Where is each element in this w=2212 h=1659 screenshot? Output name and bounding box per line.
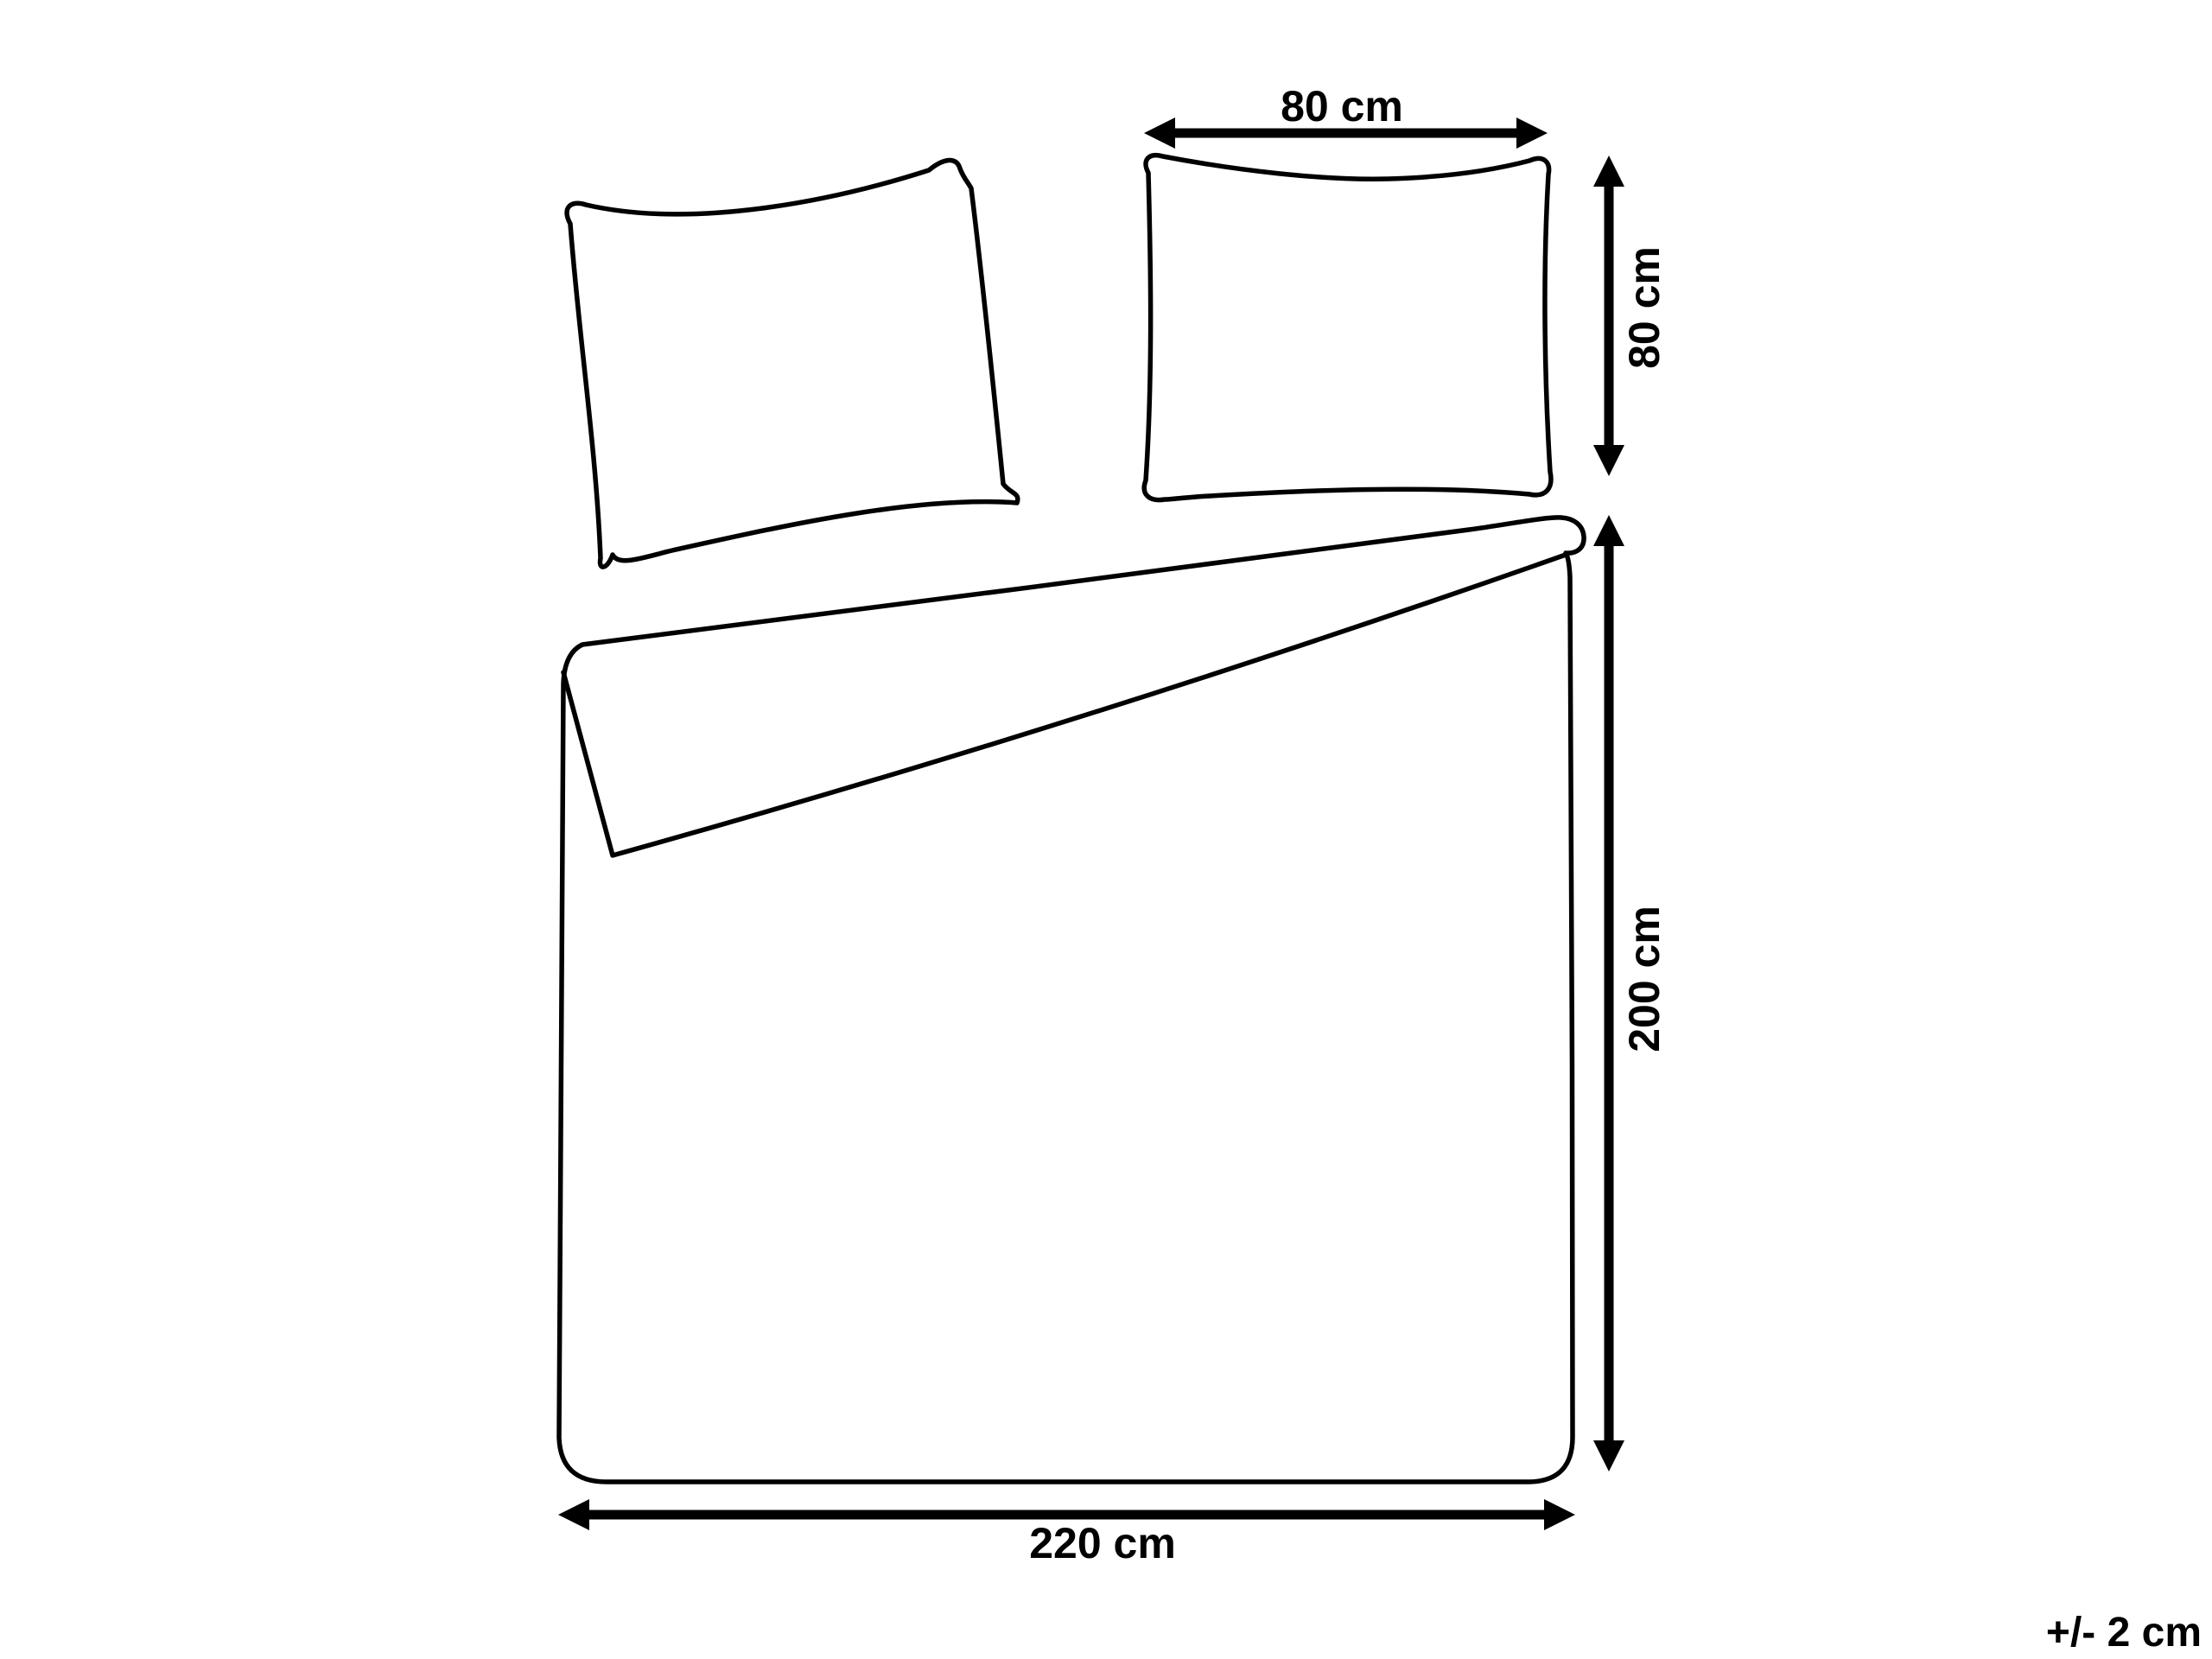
dimension-label-pillow-width: 80 cm [1281,82,1403,130]
arrowhead-down [1593,1440,1624,1471]
arrowhead-left [1144,118,1175,149]
arrowhead-right [1544,1499,1575,1530]
dimension-label-duvet-width: 220 cm [1029,1519,1176,1567]
pillowcase-left-outline [567,160,1018,567]
tolerance-label: +/- 2 cm [2046,1610,2202,1656]
duvet-cover-outline [559,518,1584,1482]
dimension-label-duvet-length: 200 cm [1620,906,1669,1052]
dimension-label-pillow-height: 80 cm [1620,246,1669,369]
arrowhead-up [1593,156,1624,187]
pillowcase-right-outline [1144,156,1551,500]
arrowhead-right [1516,118,1548,149]
arrowhead-left [558,1499,589,1530]
diagram-canvas: 80 cm 80 cm 200 cm 220 cm +/- 2 cm [0,0,2212,1659]
arrowhead-up [1593,515,1624,546]
arrowhead-down [1593,445,1624,476]
bedding-size-diagram: 80 cm 80 cm 200 cm 220 cm +/- 2 cm [0,0,2212,1659]
